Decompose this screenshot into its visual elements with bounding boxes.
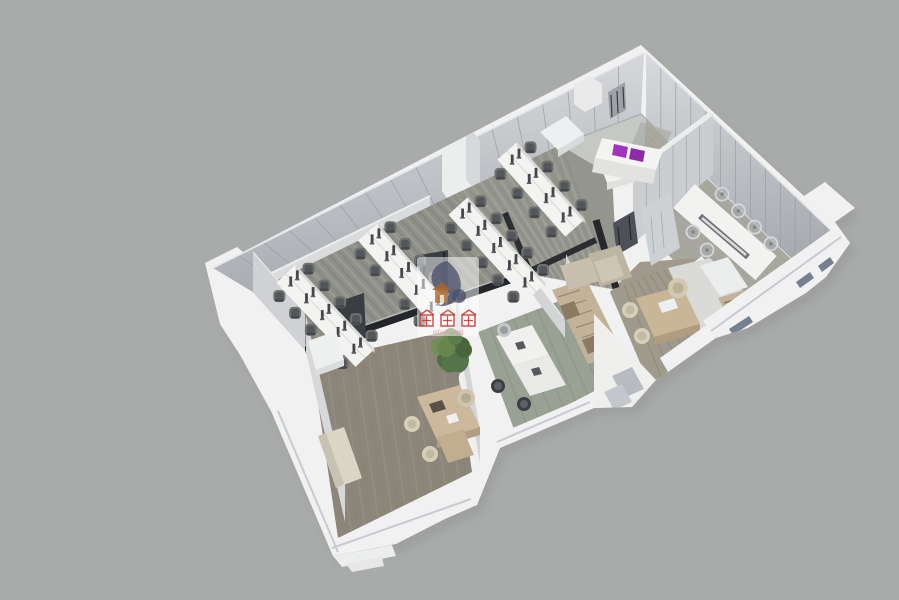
svg-text:qifangfang: qifangfang (433, 329, 464, 336)
